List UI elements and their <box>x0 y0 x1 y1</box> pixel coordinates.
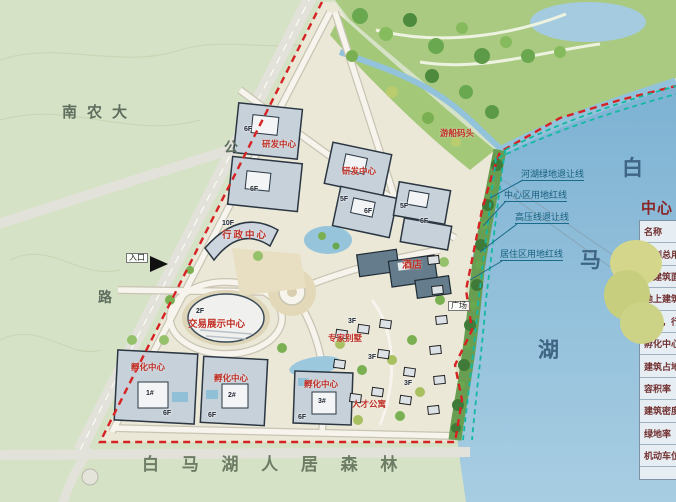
legend-row-footprint: 建筑占地面积 <box>640 355 676 377</box>
floor-label-6f-g: 6F <box>298 414 306 421</box>
lake-name-char-3: 湖 <box>538 340 559 361</box>
floor-label-3f-a: 3F <box>348 318 356 325</box>
setback-line-label-center-redline: 中心区用地红线 <box>504 191 567 202</box>
plaza-label: 广场 <box>448 301 470 311</box>
incubator-unit-label-3: 3# <box>318 398 326 405</box>
dock-label: 游船码头 <box>440 129 474 138</box>
villa-area-label: 专家别墅 <box>328 334 362 343</box>
incubator-center-label-3: 孵化中心 <box>304 380 338 389</box>
legend-row-far: 容积率 <box>640 378 676 400</box>
setback-line-label-residential-redline: 居住区用地红线 <box>500 250 563 261</box>
rnd-center-label-1: 研发中心 <box>262 140 296 149</box>
floor-label-5f-b: 5F <box>400 203 408 210</box>
legend-row-parking: 机动车位 <box>640 445 676 467</box>
floor-label-3f-b: 3F <box>368 354 376 361</box>
legend-row-green-ratio: 绿地率 <box>640 423 676 445</box>
road-name-char-top: 公 <box>224 140 238 154</box>
forest-label: 白 马 湖 人 居 森 林 <box>142 456 406 473</box>
rnd-center-label-2: 研发中心 <box>342 167 376 176</box>
floor-label-6f-c: 6F <box>364 208 372 215</box>
floor-label-6f-f: 6F <box>208 412 216 419</box>
legend-row-density: 建筑密度 <box>640 400 676 422</box>
lake-name-char-2: 马 <box>580 250 601 271</box>
incubator-center-label-1: 孵化中心 <box>131 363 165 372</box>
setback-line-label-river-green: 河湖绿地退让线 <box>521 170 584 181</box>
setback-line-label-high-voltage: 高压线退让线 <box>515 213 569 224</box>
admin-center-label: 行政中心 <box>222 231 268 241</box>
incubator-unit-label-2: 2# <box>228 392 236 399</box>
floor-label-6f-a: 6F <box>244 126 252 133</box>
incubator-center-label-2: 孵化中心 <box>214 374 248 383</box>
incubator-unit-label-1: 1# <box>146 390 154 397</box>
entrance-label: 入口 <box>126 253 148 263</box>
hotel-label: 酒店 <box>402 261 422 271</box>
floor-label-6f-b: 6F <box>250 186 258 193</box>
road-name-char-left: 路 <box>98 290 112 304</box>
admin-center-floor-label: 10F <box>222 220 234 227</box>
campus-label: 南农大 <box>62 105 137 120</box>
exhibition-center-label: 交易展示中心 <box>188 320 245 330</box>
masterplan-map: 南农大 公 路 白 马 湖 人 居 森 林 白 马 湖 河湖绿地退让线 中心区用… <box>0 0 676 502</box>
apartment-area-label: 人才公寓 <box>352 400 386 409</box>
floor-label-5f-a: 5F <box>340 196 348 203</box>
lake-name-char-1: 白 <box>622 158 643 179</box>
floor-label-3f-c: 3F <box>404 380 412 387</box>
floor-label-6f-e: 6F <box>163 410 171 417</box>
tree-canopy-overlay <box>604 240 668 346</box>
floor-label-6f-d: 6F <box>420 218 428 225</box>
map-artwork <box>0 0 676 502</box>
exhibition-center-floor-label: 2F <box>196 308 204 315</box>
